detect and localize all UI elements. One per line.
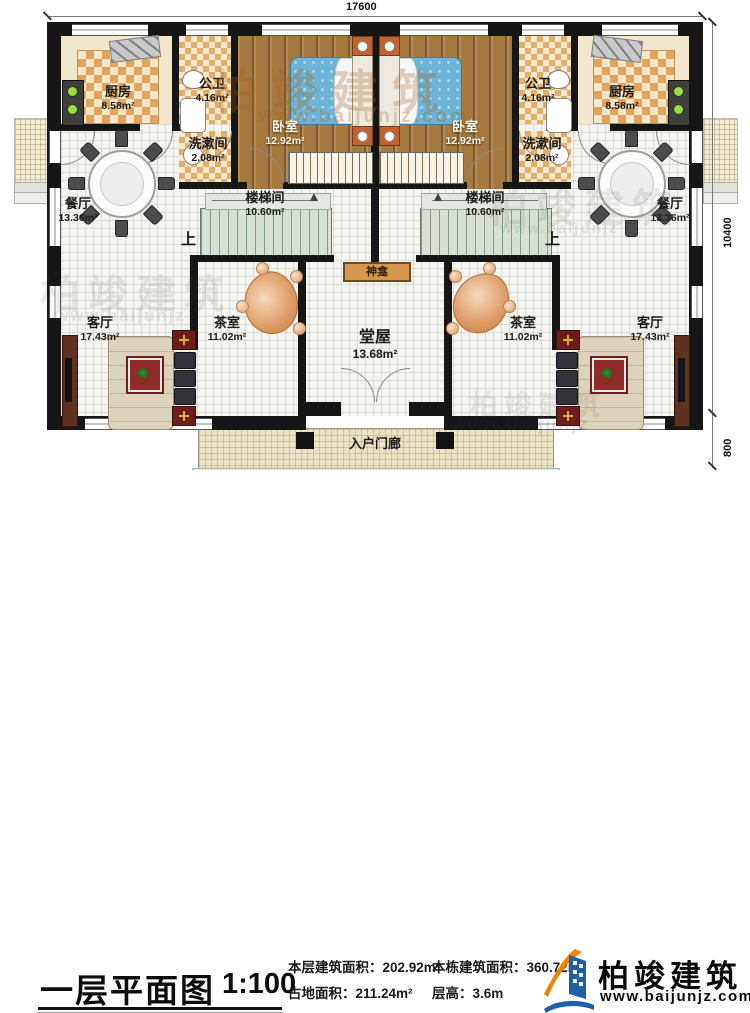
window-left-living [49,286,61,318]
dimension-right-main: 10400 [722,217,734,248]
room-label-bedroom-right: 卧室 12.92m² [425,119,505,147]
floor-plan: 神龛 厨房 8.58m² 厨房 8.58m² 公卫 4.16m² 公卫 4.16… [0,0,750,549]
room-label-dining-right: 餐厅 13.36m² [630,196,710,224]
chair [158,177,175,190]
cushion [556,388,578,405]
wall-kitchen-bath-right [571,36,578,131]
stat-floor-area: 本层建筑面积：202.92m² [288,956,440,976]
room-label-hall: 堂屋 13.68m² [325,328,425,362]
tea-dot [290,270,303,283]
wall-stair-south-right [416,255,560,262]
room-label-tea-left: 茶室 11.02m² [182,315,272,343]
bed-sheet-left [334,58,354,124]
wall-bath-bedroom-left [231,36,238,189]
window-top-bedroom-right [400,24,488,36]
burner-right-1 [673,86,684,97]
shrine-label: 神龛 [366,266,388,278]
side-table-left-2 [172,406,196,426]
wall-wash-south-right [512,182,571,189]
wall-bath-bedroom-right [512,36,519,189]
room-label-wash-right: 洗漱间 2.08m² [511,136,573,164]
plan-scale: 1:100 [222,968,296,1001]
side-porch-right [703,118,738,184]
room-label-tea-right: 茶室 11.02m² [478,315,568,343]
wall-hall-south-left [306,402,341,416]
bed-sheet-right [398,58,418,124]
dimension-right-porch: 800 [722,439,734,457]
tea-dot [503,300,516,313]
nightstand-left-1 [352,36,373,56]
chair [115,130,128,147]
closet-left [288,152,373,184]
porch-column-left [296,432,314,449]
plant-left [138,368,148,378]
dimension-top-line [47,16,703,17]
window-top-bedroom-left [262,24,350,36]
room-label-porch: 入户门廊 [325,436,425,452]
bed-frame-left [352,54,373,128]
tea-dot [483,262,496,275]
wall-kitchen-bath-left [172,36,179,131]
tea-dot [446,322,459,335]
window-top-bath-left [186,24,228,36]
stair-arrow-left [310,193,318,201]
door-gap-left [49,131,61,163]
shrine: 神龛 [343,262,411,282]
tea-dot [236,300,249,313]
bed-frame-right [379,54,400,128]
closet-right [379,152,464,184]
room-label-bedroom-left: 卧室 12.92m² [245,119,325,147]
stair-up-right: 上 [545,228,560,249]
tea-dot [293,322,306,335]
wall-wash-south-left [179,182,238,189]
plant-right [602,368,612,378]
nightstand-left-2 [352,126,373,146]
side-table-right-2 [556,406,580,426]
room-label-bath-right: 公卫 4.16m² [509,76,567,104]
stat-storey-height: 层高：3.6m [432,982,503,1002]
wall-stair-south-left [190,255,334,262]
chair [625,130,638,147]
room-label-dining-left: 餐厅 13.36m² [38,196,118,224]
cushion [174,370,196,387]
dimension-right-line [712,22,713,468]
wall-bedroom-south-right [503,182,512,189]
title-block: 一层平面图 1:100 本层建筑面积：202.92m² 占地面积：211.24m… [0,470,750,549]
tv-left [65,358,72,402]
tea-dot [256,262,269,275]
room-label-bath-left: 公卫 4.16m² [183,76,241,104]
burner-left-1 [67,86,78,97]
room-label-wash-left: 洗漱间 2.08m² [177,136,239,164]
wall-hall-south-right [409,402,444,416]
title-rule [38,1007,282,1010]
window-top-kitchen-left [72,24,148,36]
cushion [556,352,578,369]
chair [578,177,595,190]
room-label-stair-left: 楼梯间 10.60m² [220,190,310,218]
room-label-stair-right: 楼梯间 10.60m² [440,190,530,218]
plan-title: 一层平面图 [40,964,215,1012]
nightstand-right-1 [379,36,400,56]
dimension-top: 17600 [346,1,377,13]
door-gap-right [691,131,703,163]
chair [668,177,685,190]
burner-right-2 [673,104,684,115]
window-top-bath-right [522,24,564,36]
wall-bedroom-south-left [238,182,247,189]
window-top-kitchen-right [602,24,678,36]
nightstand-right-2 [379,126,400,146]
cushion [556,370,578,387]
side-porch-left [14,118,49,184]
window-right-living [691,286,703,318]
room-label-living-left: 客厅 17.43m² [55,315,145,343]
chair [68,177,85,190]
burner-left-2 [67,104,78,115]
brand-logo-icon [542,947,596,1013]
cushion [174,352,196,369]
porch-column-right [436,432,454,449]
tv-right [678,358,685,402]
tea-dot [449,270,462,283]
cushion [174,388,196,405]
stair-up-left: 上 [181,228,196,249]
room-label-kitchen-right: 厨房 8.58m² [582,84,662,112]
stat-footprint-area: 占地面积：211.24m² [288,982,413,1002]
room-label-living-right: 客厅 17.43m² [605,315,695,343]
room-label-kitchen-left: 厨房 8.58m² [78,84,158,112]
brand-url: www.baijunjz.com [600,988,750,1005]
